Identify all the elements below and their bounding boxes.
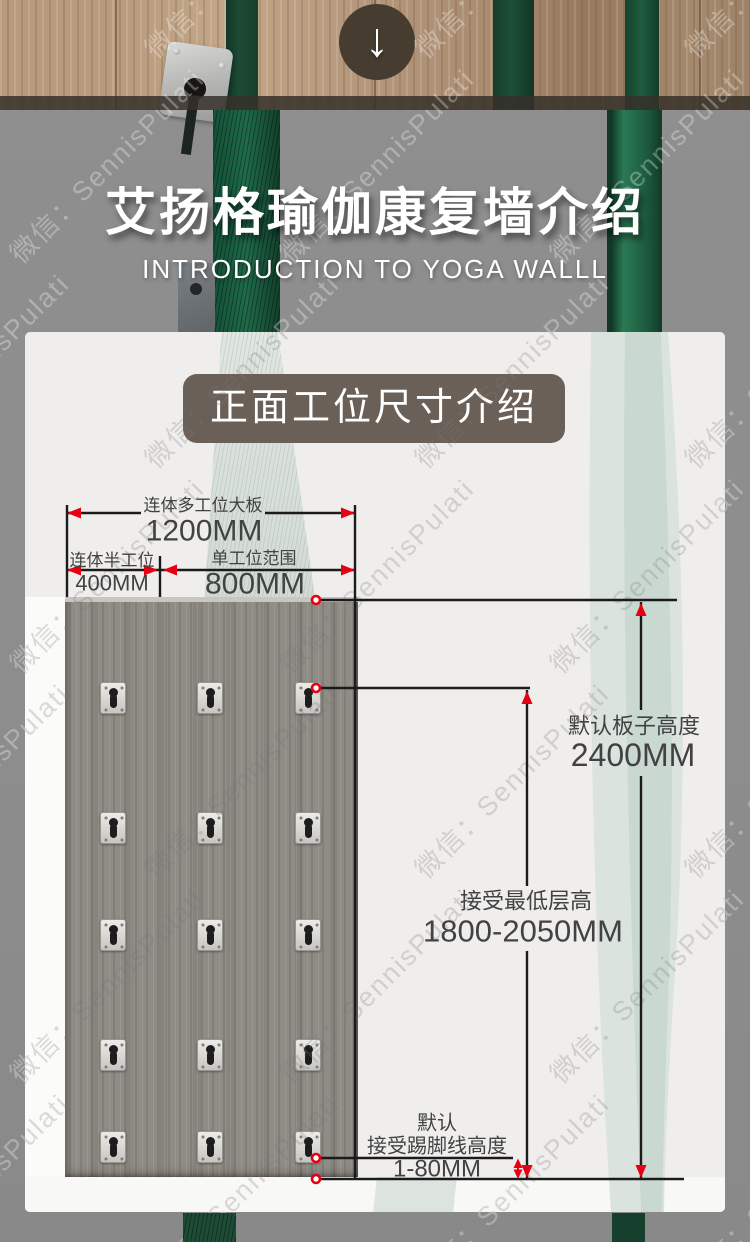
green-strap-bottom-right bbox=[612, 1213, 645, 1242]
keyhole-plate bbox=[197, 1039, 223, 1071]
dim-minfloor-label: 接受最低层高 bbox=[460, 889, 592, 912]
page-subtitle: INTRODUCTION TO YOGA WALLL bbox=[0, 252, 750, 286]
dim-skirting-value: 1-80MM bbox=[393, 1156, 481, 1181]
scroll-down-badge: ↓ bbox=[339, 4, 415, 80]
dim-top-value: 1200MM bbox=[146, 515, 263, 547]
keyhole-plate bbox=[100, 1039, 126, 1071]
dim-height-label: 默认板子高度 bbox=[568, 714, 700, 737]
keyhole-plate bbox=[197, 1131, 223, 1163]
dim-skirting-label-2: 接受踢脚线高度 bbox=[367, 1137, 507, 1158]
down-arrow-icon: ↓ bbox=[365, 17, 389, 65]
green-strap bbox=[493, 0, 534, 110]
dim-left-value: 400MM bbox=[75, 571, 148, 594]
dim-mid-label: 单工位范围 bbox=[212, 550, 297, 568]
keyhole-plate bbox=[295, 812, 321, 844]
wood-seam bbox=[699, 0, 701, 110]
keyhole-plate bbox=[295, 1039, 321, 1071]
page-title: 艾扬格瑜伽康复墙介绍 bbox=[0, 182, 750, 244]
green-strap-bottom-left bbox=[183, 1213, 236, 1242]
section-badge: 正面工位尺寸介绍 bbox=[183, 374, 565, 443]
keyhole-plate bbox=[197, 919, 223, 951]
dim-top-label: 连体多工位大板 bbox=[144, 497, 263, 515]
yoga-wall-board-photo bbox=[65, 597, 358, 1177]
keyhole-plate bbox=[197, 682, 223, 714]
keyhole-plate bbox=[100, 1131, 126, 1163]
screw-icon bbox=[173, 48, 181, 56]
keyhole-plate bbox=[100, 919, 126, 951]
divider-bar bbox=[0, 96, 750, 110]
yoga-wall-intro-page: ↓ 微信：SennisPulati微信：SennisPulati微信：Senni… bbox=[0, 0, 750, 1242]
keyhole-plate bbox=[295, 1131, 321, 1163]
wood-seam bbox=[115, 0, 117, 110]
keyhole-plate bbox=[197, 812, 223, 844]
keyhole-plate bbox=[100, 812, 126, 844]
dim-skirting-label-1: 默认 bbox=[417, 1114, 457, 1135]
dim-height-value: 2400MM bbox=[571, 739, 696, 773]
dim-mid-value: 800MM bbox=[205, 568, 305, 600]
keyhole-plate bbox=[295, 919, 321, 951]
keyhole-plate bbox=[100, 682, 126, 714]
screw-icon bbox=[218, 62, 226, 70]
dim-left-label: 连体半工位 bbox=[70, 552, 155, 570]
keyhole-plate bbox=[295, 682, 321, 714]
dim-minfloor-value: 1800-2050MM bbox=[423, 916, 623, 949]
green-strap bbox=[625, 0, 659, 110]
